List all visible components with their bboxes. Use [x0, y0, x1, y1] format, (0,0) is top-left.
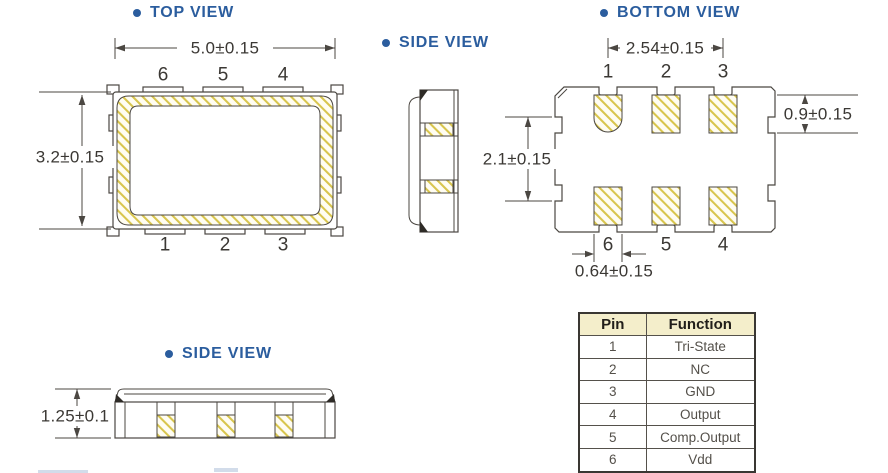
- bullet-icon: [600, 9, 608, 17]
- pin-number: 3: [579, 381, 646, 404]
- pad-hatch: [425, 123, 453, 136]
- pad-3-hatch: [709, 95, 737, 133]
- table-row: 3 GND: [579, 381, 755, 404]
- lid-outline: [115, 389, 335, 402]
- bottom-view-title: BOTTOM VIEW: [600, 4, 740, 22]
- pin-number: 5: [579, 426, 646, 449]
- pin-column-header: Pin: [579, 313, 646, 336]
- pin-number: 1: [579, 336, 646, 359]
- bullet-icon: [133, 9, 141, 17]
- pin-label: 5: [218, 65, 229, 86]
- top-view-drawing: 5.0±0.15 6 5 4: [25, 30, 355, 260]
- pin-label: 3: [278, 235, 289, 256]
- pin-function: Output: [646, 403, 755, 426]
- top-view-title-label: TOP VIEW: [150, 4, 234, 22]
- bullet-icon: [165, 350, 173, 358]
- table-row: 6 Vdd: [579, 448, 755, 471]
- pin-label: 2: [661, 62, 672, 83]
- pin-number: 2: [579, 358, 646, 381]
- package-side-body: [420, 90, 458, 232]
- pad-1-hatch: [594, 95, 622, 132]
- top-view-height-dimension: 3.2±0.15: [36, 148, 104, 167]
- pin-function: NC: [646, 358, 755, 381]
- top-view-width-dimension: 5.0±0.15: [191, 39, 259, 58]
- bottom-view-title-label: BOTTOM VIEW: [617, 4, 740, 22]
- pin-number: 4: [579, 403, 646, 426]
- bottom-view-drawing: 2.54±0.15 1 2 3 0.9±0.15 2.1±0.15 6 5: [480, 30, 888, 280]
- side-view-height-dimension: 1.25±0.1: [41, 407, 109, 426]
- lid-outline: [409, 97, 421, 225]
- pin-function: Comp.Output: [646, 426, 755, 449]
- pin-label: 6: [158, 65, 169, 86]
- pad-2-hatch: [652, 95, 680, 133]
- cutoff-text-fragment: [214, 468, 238, 472]
- table-row: 1 Tri-State: [579, 336, 755, 359]
- pin-label: 2: [220, 235, 231, 256]
- pin-label: 1: [160, 235, 171, 256]
- side-view-bottom-drawing: 1.25±0.1: [30, 368, 360, 448]
- pin-number: 6: [579, 448, 646, 471]
- pin-function-table: Pin Function 1 Tri-State 2 NC 3 GND 4 Ou…: [578, 312, 756, 473]
- side-view-top-title-label: SIDE VIEW: [399, 34, 489, 52]
- pad-6-hatch: [594, 187, 622, 225]
- pin-function: GND: [646, 381, 755, 404]
- bottom-view-inner-height-dimension: 2.1±0.15: [483, 150, 551, 169]
- pin-function: Tri-State: [646, 336, 755, 359]
- table-header-row: Pin Function: [579, 313, 755, 336]
- pin-label: 6: [603, 235, 614, 256]
- pad-5-hatch: [652, 187, 680, 225]
- pin-label: 5: [661, 235, 672, 256]
- pin-label: 4: [718, 235, 729, 256]
- pad-4-hatch: [709, 187, 737, 225]
- table-row: 5 Comp.Output: [579, 426, 755, 449]
- bottom-view-pitch-dimension: 2.54±0.15: [626, 39, 704, 58]
- pin-label: 4: [278, 65, 289, 86]
- bullet-icon: [382, 39, 390, 47]
- side-view-top-drawing: [395, 80, 485, 240]
- bottom-view-pad-height-dimension: 0.9±0.15: [784, 105, 852, 124]
- pin-label: 1: [603, 62, 614, 83]
- top-view-title: TOP VIEW: [133, 4, 234, 22]
- pad-hatch: [425, 180, 453, 193]
- datasheet-drawing-page: TOP VIEW SIDE VIEW BOTTOM VIEW SIDE VIEW…: [0, 0, 888, 473]
- bottom-view-pad-width-dimension: 0.64±0.15: [575, 262, 653, 281]
- side-view-bottom-title-label: SIDE VIEW: [182, 345, 272, 363]
- side-view-bottom-title: SIDE VIEW: [165, 345, 272, 363]
- pin-label: 3: [718, 62, 729, 83]
- function-column-header: Function: [646, 313, 755, 336]
- package-body-outline: [113, 92, 337, 229]
- table-row: 2 NC: [579, 358, 755, 381]
- side-view-top-title: SIDE VIEW: [382, 34, 489, 52]
- table-row: 4 Output: [579, 403, 755, 426]
- pin-function: Vdd: [646, 448, 755, 471]
